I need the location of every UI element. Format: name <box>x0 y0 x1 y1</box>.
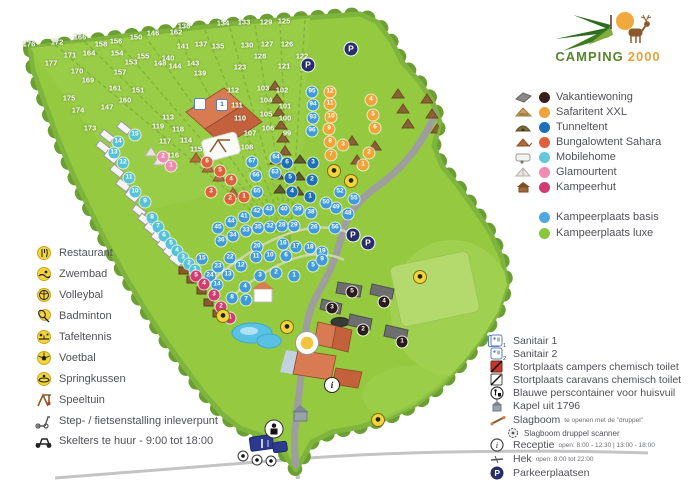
legend-item-stortplaats-caravans: Stortplaats caravans chemisch toilet <box>486 373 681 387</box>
legend-item-speeltuin: Speeltuin <box>32 393 105 407</box>
legend-color-dot <box>539 122 550 133</box>
hek-icon <box>486 452 510 466</box>
sanitair-2-icon: 2 <box>486 347 510 361</box>
springkussen-legend-icon <box>32 372 56 386</box>
kampeerhut-icon <box>512 180 536 194</box>
legend-color-dot <box>539 228 550 239</box>
legend-item-restaurant: Restaurant <box>32 246 113 260</box>
kapel-icon <box>486 399 510 413</box>
logo-art <box>533 5 683 51</box>
legend-item-perscontainer: Blauwe perscontainer voor huisvuil <box>486 386 675 400</box>
legend-color-dot <box>539 152 550 163</box>
legend-item-safaritent: Safaritent XXL <box>512 105 627 119</box>
legend-item-kampeerplaats-luxe: Kampeerplaats luxe <box>539 226 653 240</box>
restaurant-legend-icon <box>32 246 56 260</box>
safaritent-icon <box>512 105 536 119</box>
receptie-icon: i <box>486 438 510 452</box>
stortplaats-caravans-icon <box>486 373 510 387</box>
legend-color-dot <box>539 182 550 193</box>
legend-item-kapel: Kapel uit 1796 <box>486 399 580 413</box>
legend-item-receptie: i Receptie open: 8:00 - 12:30 | 13:00 - … <box>486 438 655 452</box>
legend-item-fietsenstalling: Step- / fietsenstalling inleverpunt <box>32 414 218 428</box>
badminton-legend-icon <box>32 309 56 323</box>
campground-map-page: 1761721661581561501461621361341331291251… <box>0 0 700 500</box>
legend-color-dot <box>539 107 550 118</box>
glamourtent-icon <box>512 165 536 179</box>
legend-item-bungalowtent: Bungalowtent Sahara <box>512 135 661 149</box>
zwembad-legend-icon <box>32 267 56 281</box>
legend-item-parkeerplaatsen: P Parkeerplaatsen <box>486 466 589 480</box>
logo-word-2000: 2000 <box>628 49 661 64</box>
bungalowtent-icon <box>512 135 536 149</box>
sun-icon <box>616 12 634 30</box>
skelters-legend-icon <box>32 433 56 449</box>
legend-item-slagboom: Slagboom te openen met de "druppel" <box>486 413 643 427</box>
mobilehome-icon <box>512 150 536 164</box>
legend-color-dot <box>539 137 550 148</box>
legend-item-stortplaats-campers: Stortplaats campers chemisch toilet <box>486 360 679 374</box>
slagboom-icon <box>486 413 510 427</box>
hek-detail: open: 8:00 tot 22:00 <box>536 456 594 463</box>
legend-item-kampeerhut: Kampeerhut <box>512 180 616 194</box>
stortplaats-campers-icon <box>486 360 510 374</box>
svg-text:P: P <box>494 468 500 478</box>
legend-color-dot <box>539 212 550 223</box>
receptie-detail: open: 8:00 - 12:30 | 13:00 - 18:00 <box>558 442 654 449</box>
legend-item-tunneltent: Tunneltent <box>512 120 608 134</box>
legend-item-voetbal: Voetbal <box>32 351 96 365</box>
legend-item-springkussen: Springkussen <box>32 372 126 386</box>
perscontainer-legend-icon <box>486 386 510 400</box>
legend-item-sanitair-1: 1 Sanitair 1 <box>486 334 557 348</box>
speeltuin-legend-icon <box>32 392 56 408</box>
volleybal-legend-icon <box>32 288 56 302</box>
legend-item-volleybal: Volleybal <box>32 288 103 302</box>
tunneltent-icon <box>512 120 536 134</box>
legend-item-vakantiewoning: Vakantiewoning <box>512 90 633 104</box>
parkeer-icon: P <box>486 466 510 480</box>
legend-item-glamourtent: Glamourtent <box>512 165 617 179</box>
tafeltennis-legend-icon <box>32 330 56 344</box>
legend-color-dot <box>539 92 550 103</box>
legend-item-skelters: Skelters te huur - 9:00 tot 18:00 <box>32 434 213 448</box>
pine-branch-icon <box>555 15 613 51</box>
camping-2000-logo: CAMPING2000 <box>533 5 683 67</box>
legend-item-kampeerplaats-basis: Kampeerplaats basis <box>539 210 659 224</box>
logo-word-camping: CAMPING <box>555 49 623 64</box>
legend-color-dot <box>539 167 550 178</box>
legend-item-zwembad: Zwembad <box>32 267 107 281</box>
vakantiewoning-icon <box>512 90 536 104</box>
legend-item-tafeltennis: Tafeltennis <box>32 330 112 344</box>
logo-text: CAMPING2000 <box>533 49 683 64</box>
legend-item-badminton: Badminton <box>32 309 112 323</box>
sanitair-1-icon: 1 <box>486 334 510 348</box>
legend-item-hek: Hek open: 8:00 tot 22:00 <box>486 452 594 466</box>
legend-item-sanitair-2: 2 Sanitair 2 <box>486 347 557 361</box>
legend-item-mobilehome: Mobilehome <box>512 150 616 164</box>
step-legend-icon <box>32 413 56 429</box>
slagboom-detail: te openen met de "druppel" <box>564 417 643 424</box>
voetbal-legend-icon <box>32 351 56 365</box>
